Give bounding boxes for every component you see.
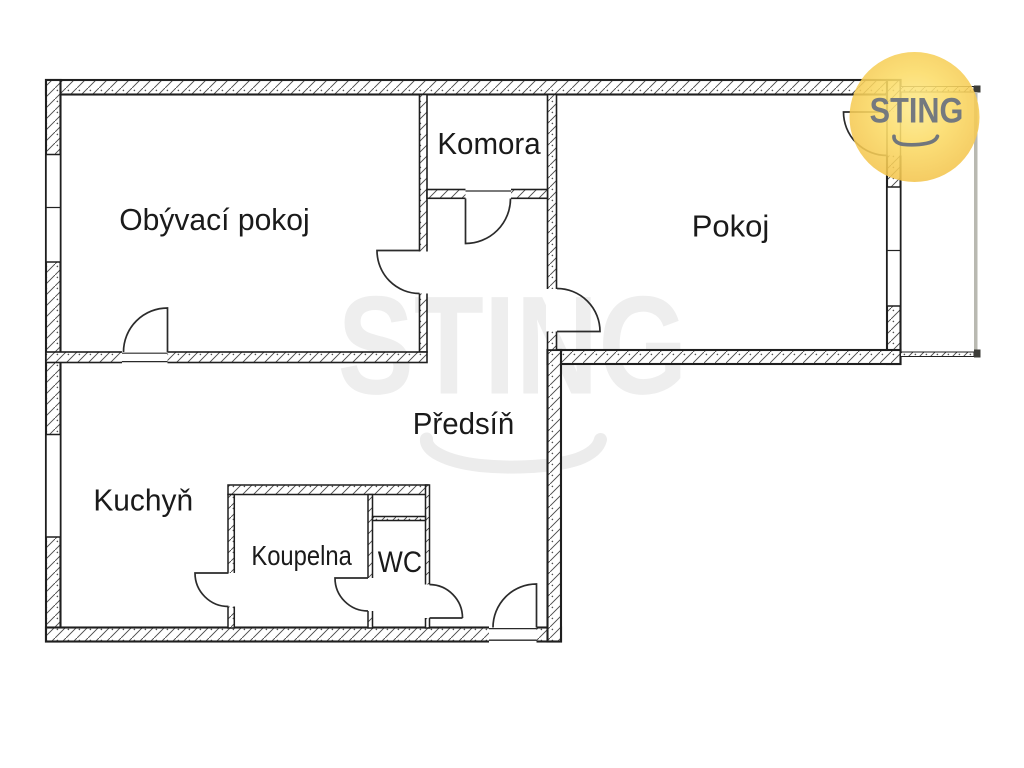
svg-text:Pokoj: Pokoj [692, 209, 770, 244]
svg-text:Předsíň: Předsíň [413, 407, 514, 441]
svg-text:Obývací pokoj: Obývací pokoj [119, 203, 309, 238]
svg-text:STING: STING [338, 268, 688, 425]
svg-text:Komora: Komora [437, 127, 540, 161]
svg-text:Kuchyň: Kuchyň [93, 483, 193, 518]
svg-text:STING: STING [870, 91, 964, 130]
svg-text:Koupelna: Koupelna [251, 539, 352, 571]
svg-text:WC: WC [378, 545, 422, 579]
